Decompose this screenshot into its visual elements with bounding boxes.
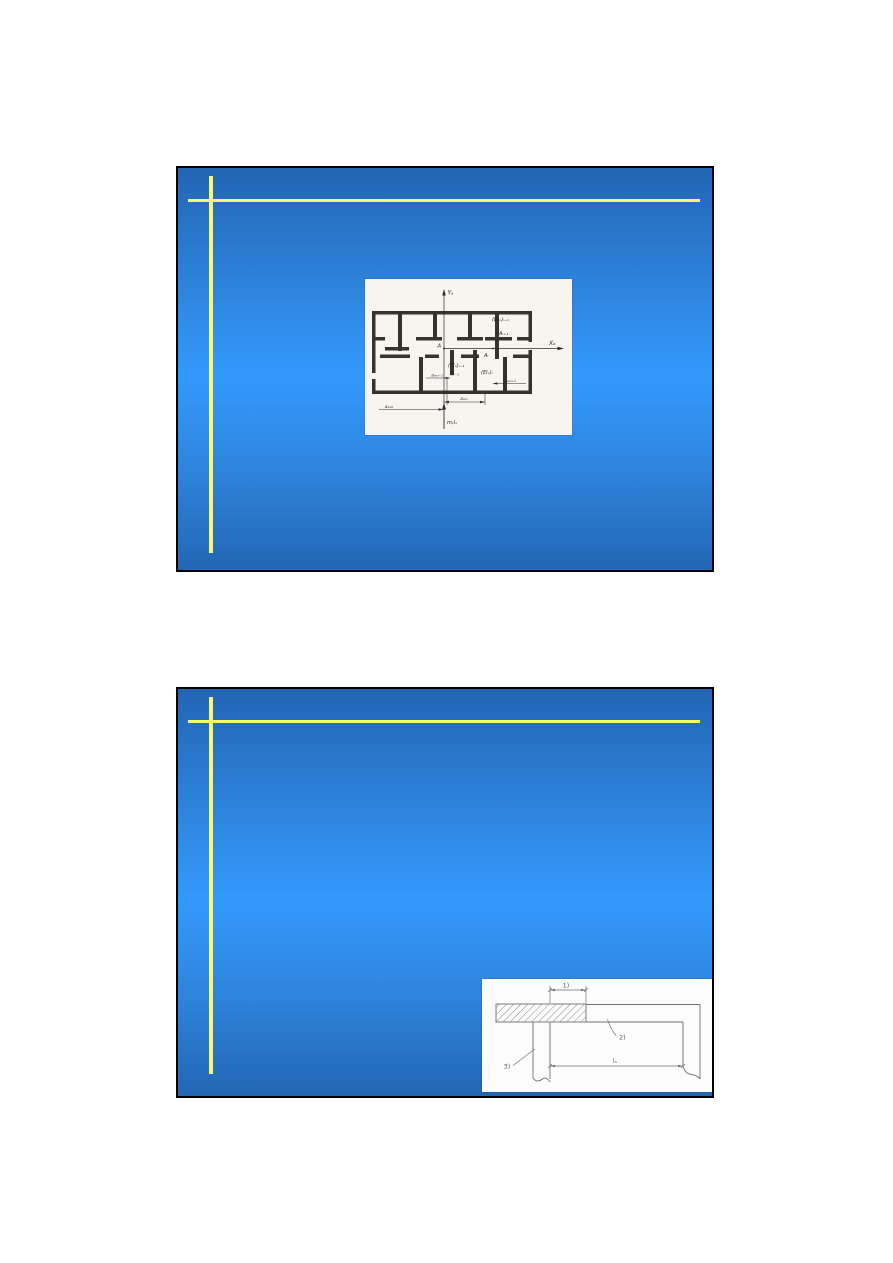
origin-point-marker xyxy=(443,348,445,350)
wall-segment xyxy=(372,311,376,373)
x-axis-arrowhead xyxy=(558,347,565,350)
label-dim-a-axi: aₐₓᵢ xyxy=(460,397,468,402)
wall-segment xyxy=(485,337,512,341)
wall-segment xyxy=(380,355,410,359)
label-ei-i-minus-1: (EIₓ)ᵢ₋₁ xyxy=(448,363,464,369)
slab-outline xyxy=(496,1004,700,1082)
floor-plan-figure: Yₐ Xₐ (EIₓ)ᵢ₊₁ Aᵢ₊₁ A Aᵢ (EIₓ)ᵢ₋₁ Aᵢ₋₁ (… xyxy=(365,279,572,435)
wall-segment xyxy=(473,350,477,391)
left-column-break xyxy=(533,1078,550,1082)
label-callout-1: 1) xyxy=(563,982,570,990)
wall-segment xyxy=(372,391,532,395)
accent-horizontal-line xyxy=(188,199,700,202)
floor-plan-svg: Yₐ Xₐ (EIₓ)ᵢ₊₁ Aᵢ₊₁ A Aᵢ (EIₓ)ᵢ₋₁ Aᵢ₋₁ (… xyxy=(365,279,572,435)
wall-segment xyxy=(398,314,402,351)
wall-segment xyxy=(433,314,437,337)
label-dim-a-axi-minus-1: aₐₓᵢ₋₁ xyxy=(431,374,443,379)
label-span: lₛ xyxy=(613,1057,618,1065)
label-dim-a-axi-plus-1: aₐₓᵢ₊₁ xyxy=(504,379,516,384)
wall-segment xyxy=(425,355,439,359)
label-callout-3: 3) xyxy=(504,1063,511,1071)
slide-1: Yₐ Xₐ (EIₓ)ᵢ₊₁ Aᵢ₊₁ A Aᵢ (EIₓ)ᵢ₋₁ Aᵢ₋₁ (… xyxy=(176,166,714,572)
wall-segment xyxy=(372,337,385,341)
wall-segment xyxy=(503,357,507,391)
effective-flange-hatched xyxy=(496,1004,586,1022)
label-dim-a-ax0: aₐₓ₀ xyxy=(385,405,394,410)
x-axis-label: Xₐ xyxy=(548,340,556,347)
wall-segment xyxy=(372,379,376,394)
label-a-i-minus-1: Aᵢ₋₁ xyxy=(449,372,459,378)
leader-callout-3 xyxy=(513,1049,535,1066)
slab-diagram-svg: 1) 2) 3) lₛ xyxy=(482,979,712,1092)
wall-segment xyxy=(513,355,532,359)
wall-segment xyxy=(457,337,483,341)
accent-vertical-line xyxy=(209,176,213,553)
wall-segment xyxy=(416,337,442,341)
wall-segment xyxy=(468,314,472,337)
y-axis-arrowhead xyxy=(442,289,446,296)
accent-horizontal-line xyxy=(188,720,700,723)
slide-2: 1) 2) 3) lₛ xyxy=(176,687,714,1098)
wall-segment xyxy=(419,357,423,391)
wall-segment xyxy=(517,337,532,341)
page: { "slides": { "slide1": { "figure": { "y… xyxy=(0,0,893,1263)
label-load: mᵧlₓ xyxy=(447,420,458,426)
load-arrowhead xyxy=(442,403,446,410)
label-a-i: Aᵢ xyxy=(483,353,489,359)
right-support-break xyxy=(683,1066,700,1079)
label-a-origin: A xyxy=(436,344,441,350)
accent-vertical-line xyxy=(209,697,213,1074)
wall-segment xyxy=(385,347,409,351)
slab-effective-width-figure: 1) 2) 3) lₛ xyxy=(482,979,712,1092)
slab-labels: 1) 2) 3) lₛ xyxy=(504,982,626,1071)
label-a-i-plus-1: Aᵢ₊₁ xyxy=(498,331,508,337)
label-callout-2: 2) xyxy=(619,1034,626,1042)
wall-segment xyxy=(372,311,532,315)
slab-dimensions xyxy=(513,986,685,1068)
label-ei-i-plus-1: (EIₓ)ᵢ₊₁ xyxy=(492,317,509,323)
point-marker xyxy=(492,348,494,350)
label-ei-i: (EIₓ)ᵢ xyxy=(481,370,493,376)
y-axis-label: Yₐ xyxy=(448,290,455,297)
point-marker xyxy=(510,338,512,340)
